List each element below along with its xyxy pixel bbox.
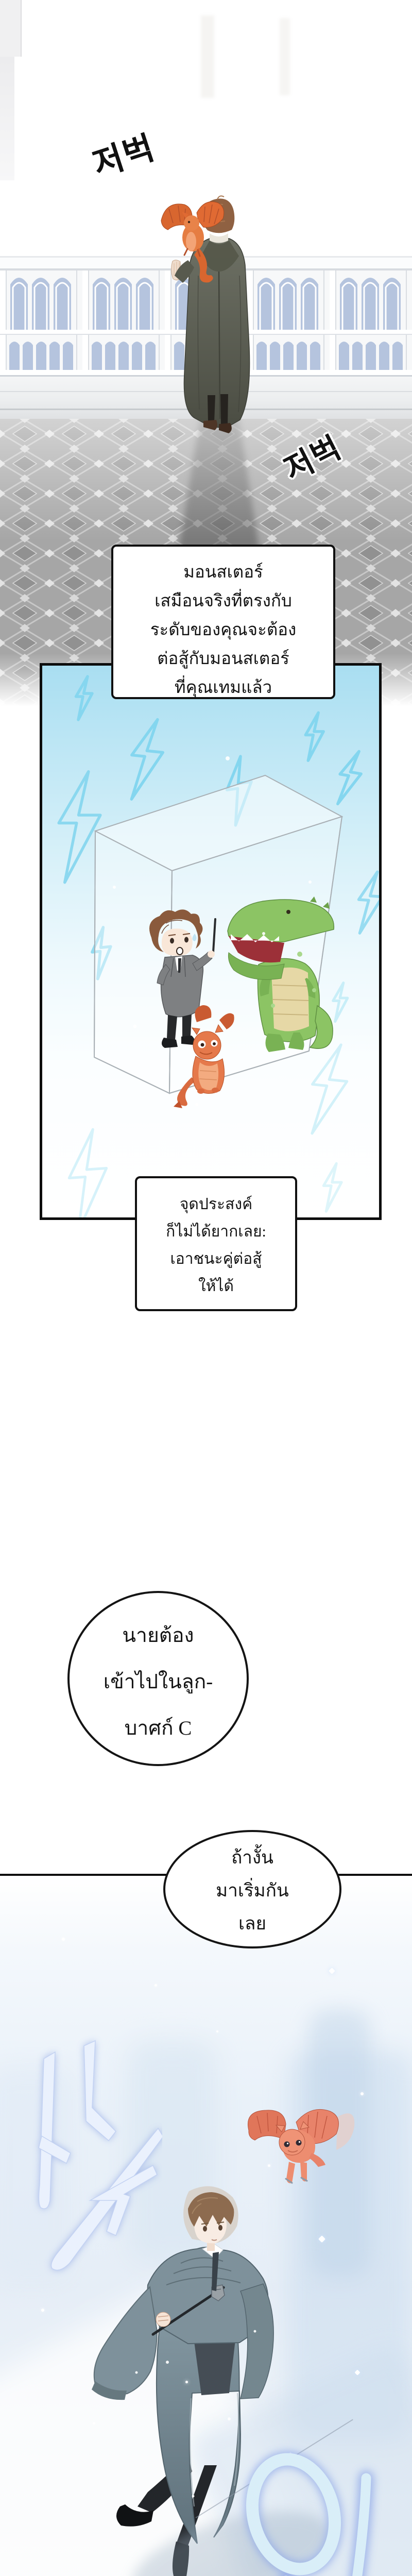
panel-illustration — [42, 666, 379, 1217]
narration-line: ระดับของคุณจะต้อง — [113, 616, 333, 645]
narration-line: ก็ไม่ได้ยากเลย: — [137, 1218, 295, 1245]
narration-line: เสมือนจริงที่ตรงกับ — [113, 587, 333, 616]
monster-info-panel — [40, 663, 382, 1220]
background-pillar-hint — [201, 15, 214, 98]
speech-bubble-1: นายต้อง เข้าไปในลูก- บาศก์ C — [67, 1591, 249, 1766]
comic-page: 저벅 — [0, 0, 412, 2576]
speech-line: เลย — [165, 1907, 339, 1940]
background-wall-hint — [0, 57, 14, 180]
speech-line: บาศก์ C — [70, 1705, 247, 1752]
sfx-stride-strokes — [234, 2411, 399, 2576]
speech-line: ถ้างั้น — [165, 1841, 339, 1874]
speech-line: มาเริ่มกัน — [165, 1874, 339, 1907]
speech-line: นายต้อง — [70, 1613, 247, 1659]
sfx-footstep-top: 저벅 — [86, 121, 160, 185]
narration-line: ต่อสู้กับมอนสเตอร์ — [113, 645, 333, 673]
narration-box-2: จุดประสงค์ ก็ไม่ได้ยากเลย: เอาชนะคู่ต่อส… — [135, 1176, 297, 1311]
narration-box-1: มอนสเตอร์ เสมือนจริงที่ตรงกับ ระดับของคุ… — [111, 545, 335, 699]
narration-line: มอนสเตอร์ — [113, 558, 333, 587]
background-window-hint — [0, 0, 22, 57]
narration-line: จุดประสงค์ — [137, 1191, 295, 1218]
narration-line: ที่คุณเทมแล้ว — [113, 673, 333, 702]
speech-bubble-2: ถ้างั้น มาเริ่มกัน เลย — [163, 1830, 341, 1948]
narration-line: เอาชนะคู่ต่อสู้ — [137, 1245, 295, 1273]
narration-line: ให้ได้ — [137, 1273, 295, 1300]
background-pillar-hint — [280, 18, 290, 95]
speech-line: เข้าไปในลูก- — [70, 1659, 247, 1705]
red-dragon-flying — [153, 197, 231, 287]
